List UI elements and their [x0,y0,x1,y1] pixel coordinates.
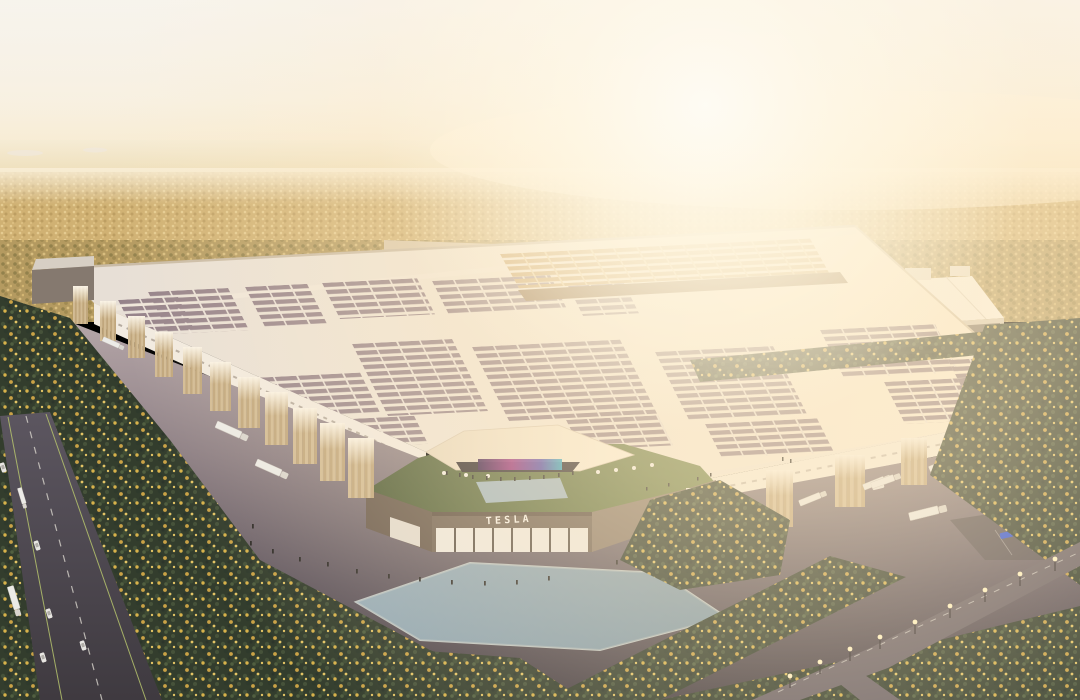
gigafactory-aerial-render: TESLA [0,0,1080,700]
render-canvas: TESLA [0,0,1080,700]
sky-wash [0,0,1080,700]
sun-glare [0,0,1080,700]
